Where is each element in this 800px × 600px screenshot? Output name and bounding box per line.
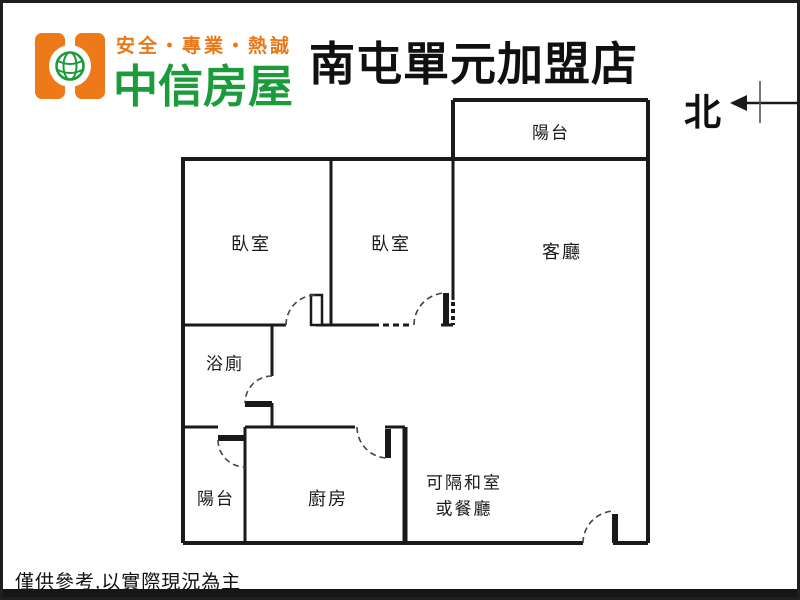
- floorplan-drawing: [3, 3, 800, 600]
- room-label-balcony-bottom: 陽台: [197, 485, 235, 510]
- room-label-living-room: 客廳: [542, 238, 582, 264]
- flex-room-line2: 或餐廳: [426, 497, 502, 523]
- floorplan-flyer: 安全・專業・熱誠 中信房屋 南屯單元加盟店 北: [0, 0, 800, 600]
- room-label-bedroom-2: 臥室: [371, 230, 411, 256]
- bottom-bar: [3, 589, 797, 597]
- door-leaves: [218, 293, 615, 543]
- room-label-bedroom-1: 臥室: [231, 230, 271, 256]
- door-swing-arcs: [218, 293, 615, 543]
- room-label-bathroom: 浴廁: [206, 350, 244, 375]
- room-label-balcony-top: 陽台: [532, 119, 570, 144]
- outer-walls: [183, 100, 648, 543]
- north-arrow-icon: [730, 81, 800, 123]
- room-label-kitchen: 廚房: [308, 485, 348, 511]
- flex-room-line1: 可隔和室: [426, 471, 502, 497]
- room-label-flex-room: 可隔和室 或餐廳: [426, 471, 502, 524]
